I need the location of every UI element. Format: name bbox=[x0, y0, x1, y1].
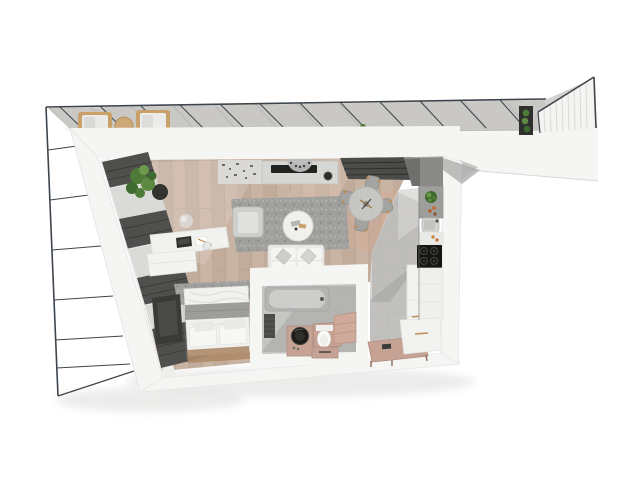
bathroom-wall-left bbox=[250, 286, 262, 362]
window-blinds-top bbox=[340, 157, 414, 180]
cooktop bbox=[417, 245, 442, 268]
floor-plan-render bbox=[0, 0, 640, 480]
mid-counter bbox=[419, 232, 443, 245]
right-wall bbox=[441, 156, 462, 364]
bench-decor bbox=[382, 344, 391, 350]
speaker bbox=[324, 172, 332, 180]
tiled-steps bbox=[334, 312, 356, 344]
gray-blanket bbox=[185, 302, 249, 320]
desk-lamp bbox=[203, 242, 211, 250]
drawer-unit bbox=[147, 250, 197, 276]
lower-counter bbox=[419, 268, 443, 320]
bathroom bbox=[250, 264, 368, 366]
bath-faucet bbox=[320, 297, 324, 301]
base-cabinet bbox=[400, 318, 442, 354]
decor-shelf bbox=[218, 160, 262, 184]
toilet-tank bbox=[316, 325, 333, 331]
bathroom-wall-right bbox=[356, 284, 368, 358]
floor-plan-canvas bbox=[0, 0, 640, 480]
faucet bbox=[435, 219, 438, 222]
round-coffee-table bbox=[283, 211, 313, 241]
